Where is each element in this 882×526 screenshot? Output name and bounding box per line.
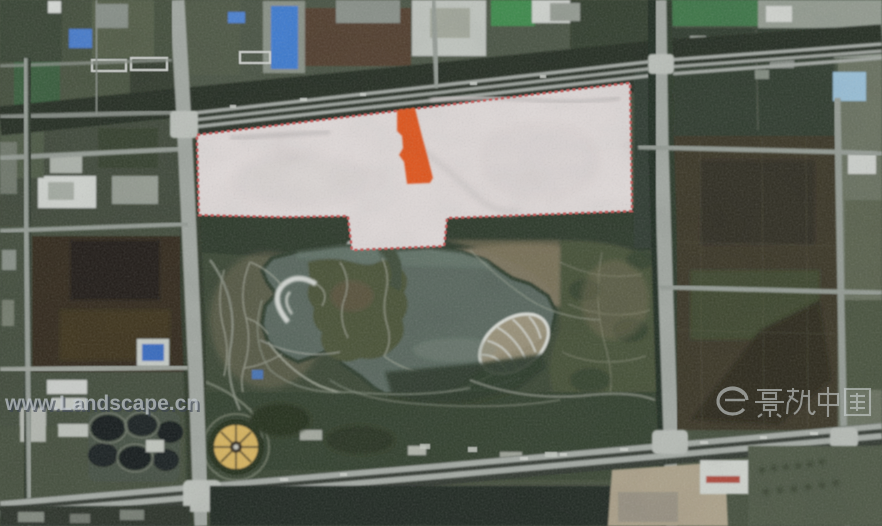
svg-text:www.Landscape.cn: www.Landscape.cn — [4, 392, 199, 415]
